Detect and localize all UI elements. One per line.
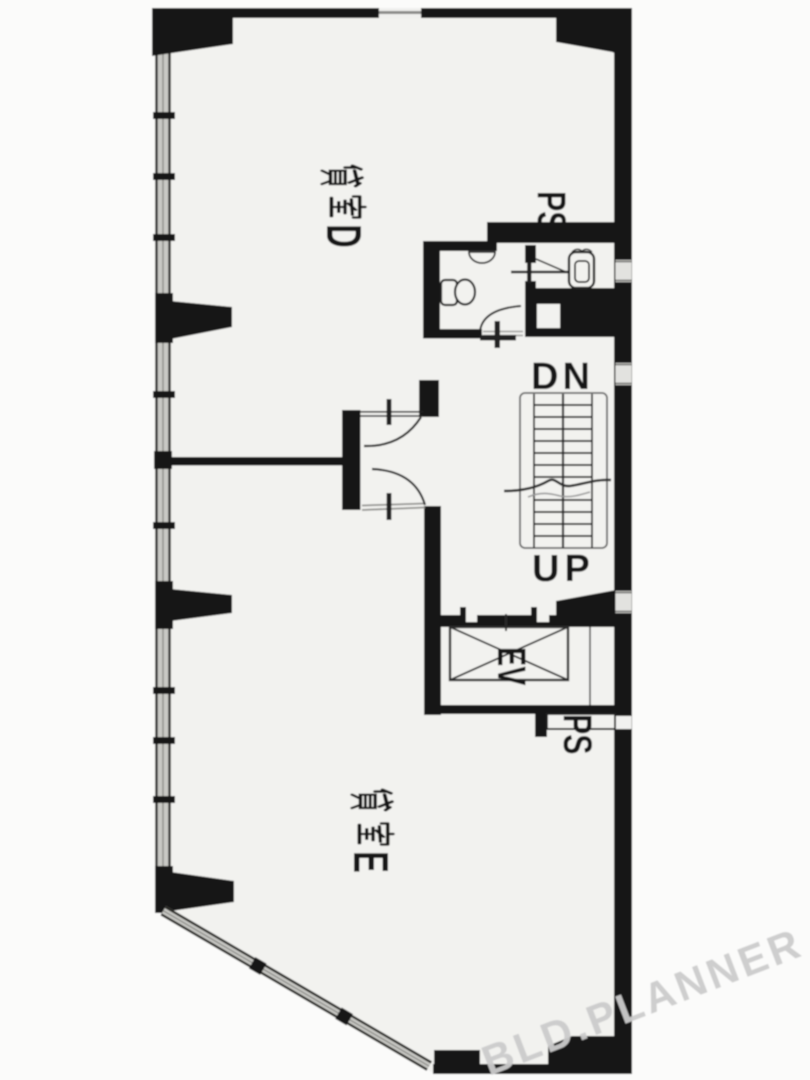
svg-text:PS: PS — [555, 714, 600, 755]
svg-text:UP: UP — [532, 548, 595, 590]
svg-text:DN: DN — [531, 356, 594, 398]
svg-text:EV: EV — [489, 647, 534, 685]
svg-text:E: E — [344, 851, 399, 873]
svg-text:PS: PS — [529, 191, 574, 232]
svg-text:D: D — [317, 224, 372, 248]
